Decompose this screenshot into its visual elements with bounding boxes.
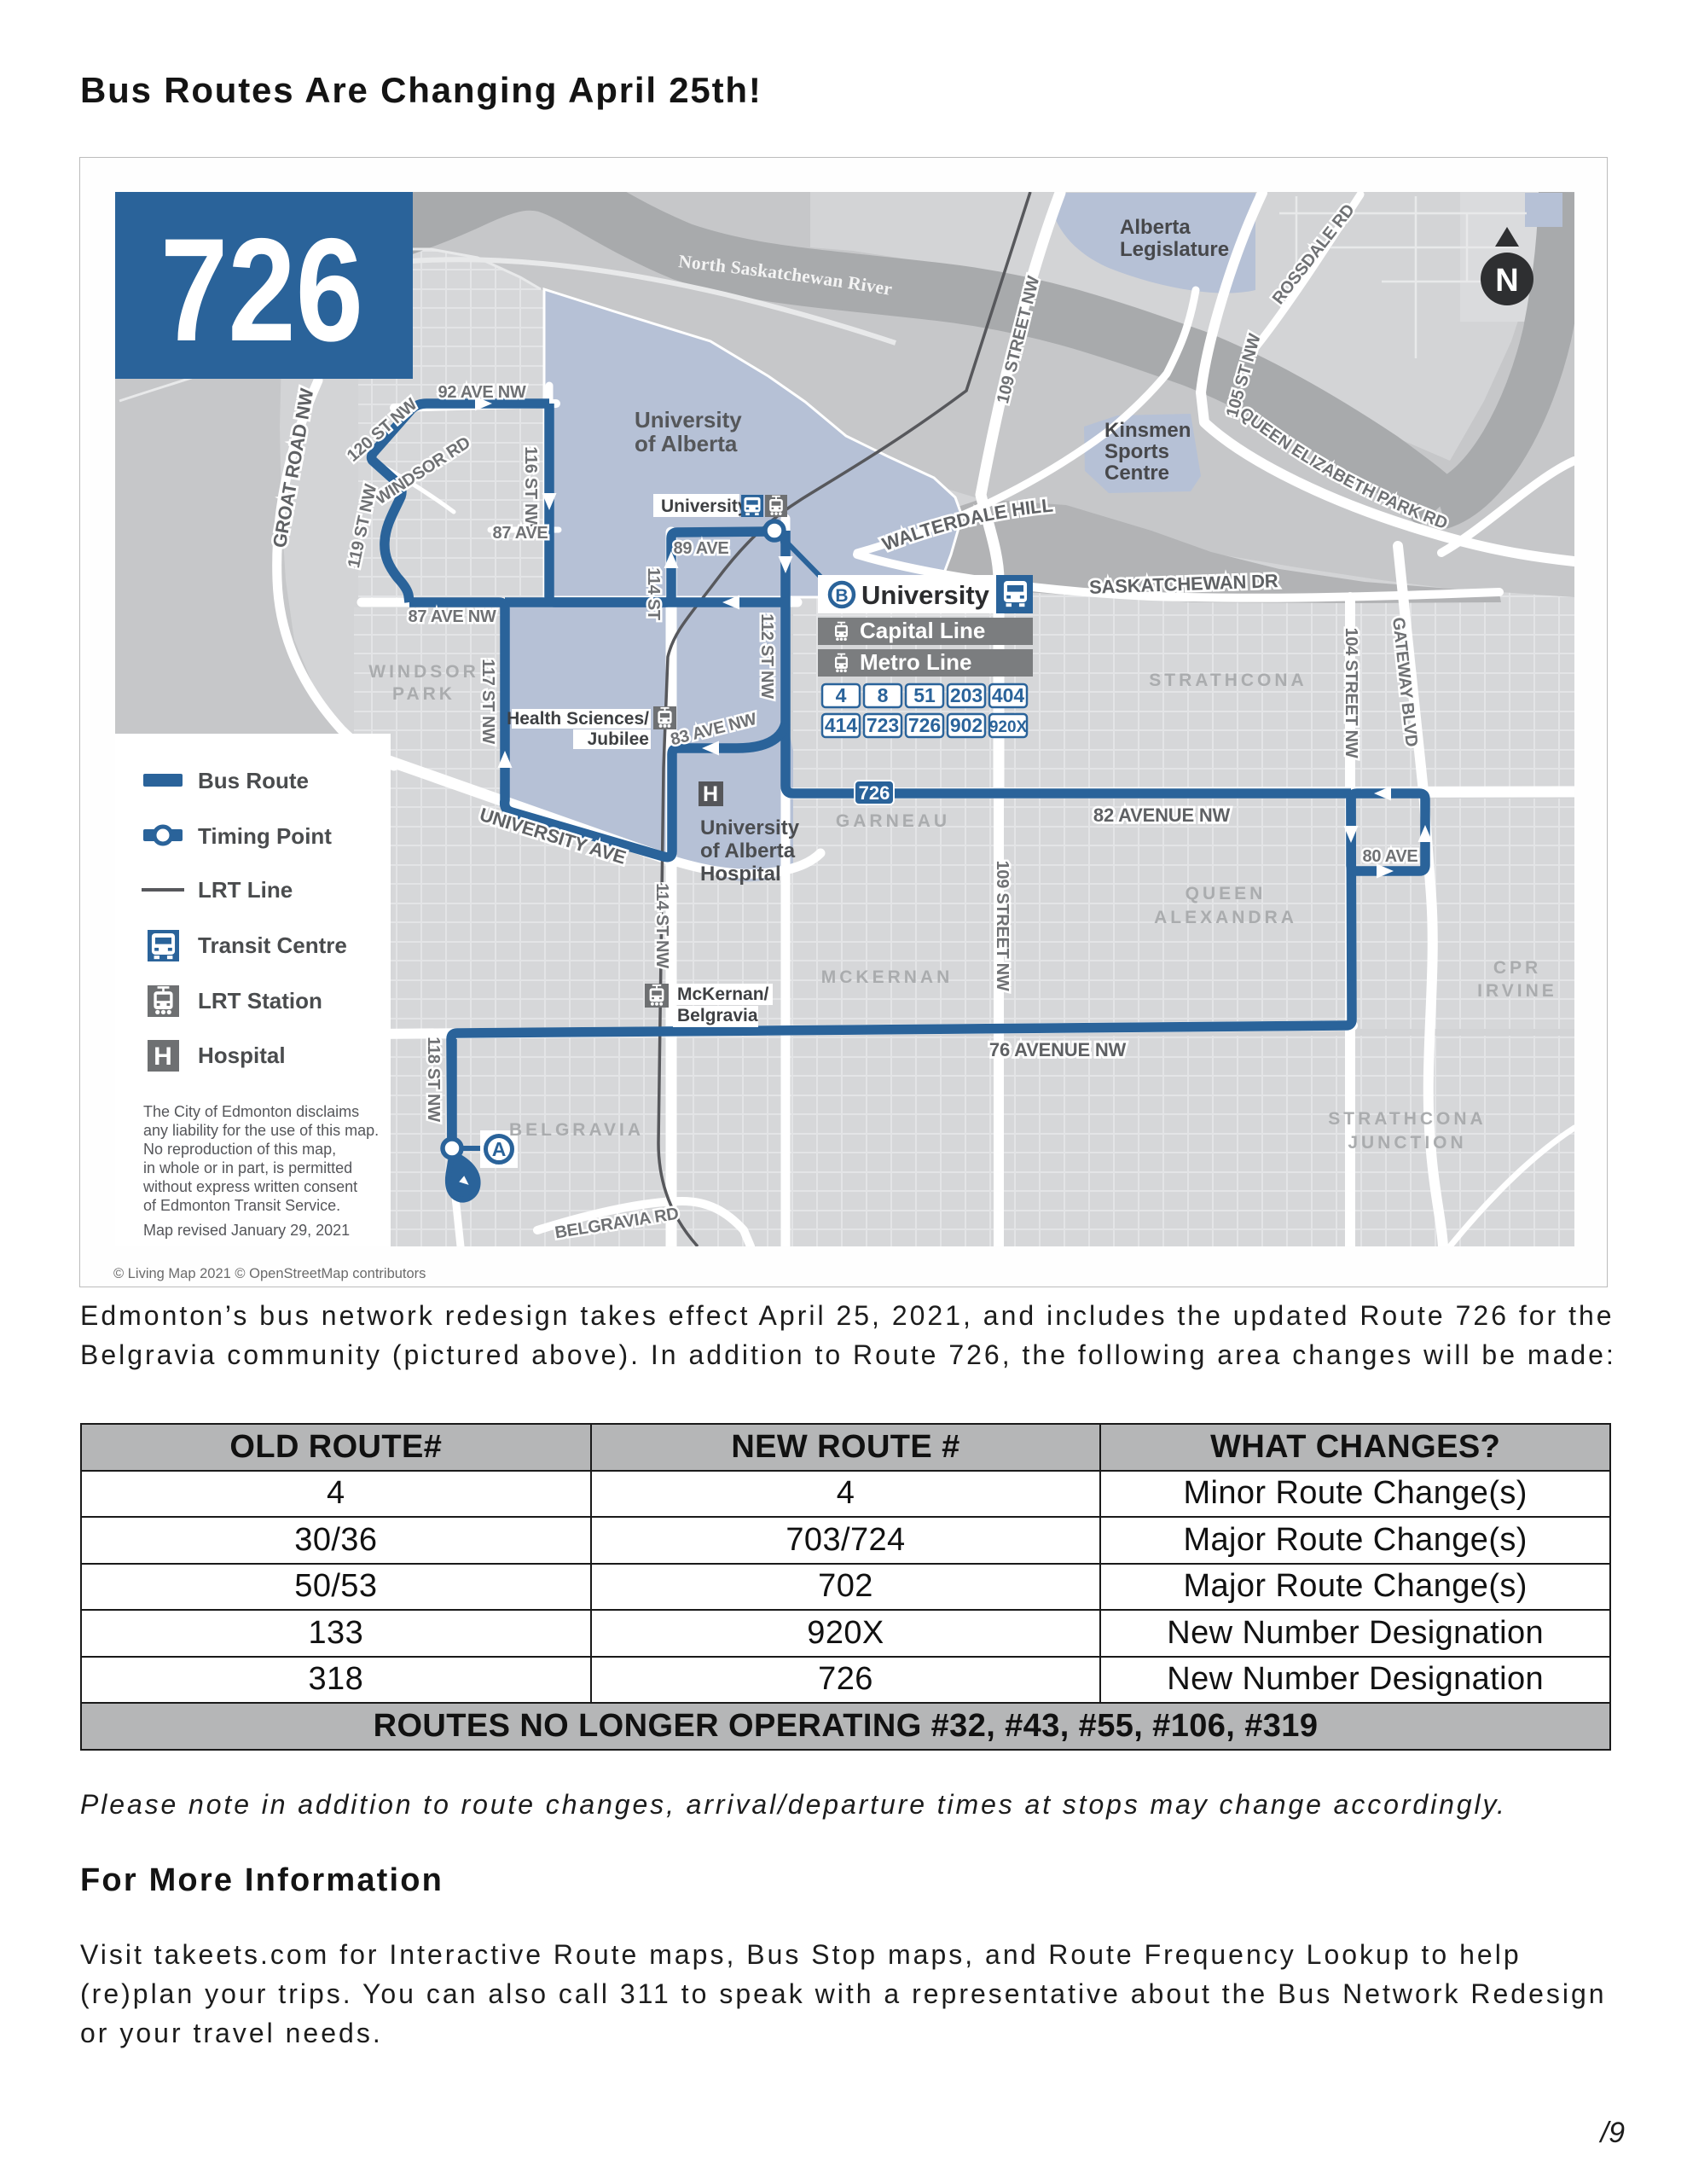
svg-text:Sports: Sports xyxy=(1104,440,1169,463)
svg-text:Map revised January 29, 2021: Map revised January 29, 2021 xyxy=(143,1222,350,1239)
svg-text:Timing Point: Timing Point xyxy=(198,823,332,849)
svg-text:University: University xyxy=(661,497,748,516)
svg-text:4: 4 xyxy=(836,684,847,706)
svg-text:University: University xyxy=(635,407,742,433)
svg-text:GARNEAU: GARNEAU xyxy=(836,811,950,831)
svg-text:Hospital: Hospital xyxy=(198,1043,286,1068)
svg-text:726: 726 xyxy=(859,782,890,804)
svg-text:51: 51 xyxy=(913,684,936,706)
svg-text:902: 902 xyxy=(950,714,983,736)
svg-text:Legislature: Legislature xyxy=(1120,238,1229,261)
svg-text:112 ST NW: 112 ST NW xyxy=(757,613,776,699)
svg-text:89 AVE: 89 AVE xyxy=(674,539,729,558)
svg-text:any liability for the use of t: any liability for the use of this map. xyxy=(143,1122,379,1139)
svg-text:of Alberta: of Alberta xyxy=(635,431,738,456)
svg-text:82 AVENUE NW: 82 AVENUE NW xyxy=(1093,804,1231,826)
svg-text:404: 404 xyxy=(992,684,1025,706)
svg-text:203: 203 xyxy=(950,684,983,706)
svg-text:McKernan/: McKernan/ xyxy=(677,985,769,1004)
svg-text:H: H xyxy=(154,1043,172,1071)
svg-text:H: H xyxy=(703,782,718,806)
svg-text:CPR: CPR xyxy=(1493,958,1541,978)
svg-text:109 STREET NW: 109 STREET NW xyxy=(993,861,1012,991)
svg-text:Centre: Centre xyxy=(1104,462,1169,485)
svg-text:80 AVE: 80 AVE xyxy=(1363,847,1418,866)
svg-text:No reproduction of this map,: No reproduction of this map, xyxy=(143,1141,336,1158)
svg-text:N: N xyxy=(1495,263,1518,299)
svg-text:726: 726 xyxy=(908,714,941,736)
svg-text:STRATHCONA: STRATHCONA xyxy=(1149,671,1307,690)
svg-text:118 ST NW: 118 ST NW xyxy=(424,1037,443,1122)
svg-text:University: University xyxy=(700,816,800,839)
svg-text:ALEXANDRA: ALEXANDRA xyxy=(1154,908,1297,927)
svg-text:The City of Edmonton disclaim: The City of Edmonton disclaims xyxy=(143,1103,359,1120)
svg-text:87 AVE: 87 AVE xyxy=(493,524,548,543)
svg-text:University: University xyxy=(861,580,990,610)
svg-text:Health Sciences/: Health Sciences/ xyxy=(507,709,649,729)
svg-text:Alberta: Alberta xyxy=(1120,216,1191,239)
svg-text:IRVINE: IRVINE xyxy=(1477,981,1557,1001)
svg-text:LRT Line: LRT Line xyxy=(198,877,293,903)
svg-text:Jubilee: Jubilee xyxy=(588,729,649,749)
svg-text:MCKERNAN: MCKERNAN xyxy=(821,967,954,987)
svg-text:Metro Line: Metro Line xyxy=(860,649,971,675)
svg-text:114 ST: 114 ST xyxy=(644,567,663,620)
svg-text:723: 723 xyxy=(867,714,899,736)
svg-text:117 ST NW: 117 ST NW xyxy=(478,659,497,744)
svg-text:920X: 920X xyxy=(989,718,1028,736)
svg-text:Transit Centre: Transit Centre xyxy=(198,932,347,958)
svg-text:STRATHCONA: STRATHCONA xyxy=(1328,1109,1486,1129)
svg-text:of Alberta: of Alberta xyxy=(700,839,796,863)
svg-text:726: 726 xyxy=(160,208,363,372)
svg-text:114 ST NW: 114 ST NW xyxy=(652,883,671,968)
svg-text:Hospital: Hospital xyxy=(700,863,781,886)
svg-text:JUNCTION: JUNCTION xyxy=(1348,1133,1466,1153)
svg-text:B: B xyxy=(835,586,848,606)
svg-text:92 AVE NW: 92 AVE NW xyxy=(438,383,526,402)
svg-text:PARK: PARK xyxy=(392,684,455,704)
svg-text:BELGRAVIA: BELGRAVIA xyxy=(509,1120,644,1140)
svg-text:Capital Line: Capital Line xyxy=(860,618,985,643)
svg-text:414: 414 xyxy=(825,714,858,736)
svg-text:87 AVE NW: 87 AVE NW xyxy=(409,607,496,626)
svg-text:without express written consen: without express written consent xyxy=(142,1178,357,1195)
svg-text:of Edmonton Transit Service.: of Edmonton Transit Service. xyxy=(143,1197,340,1214)
svg-text:116 ST NW: 116 ST NW xyxy=(521,446,540,531)
svg-text:76 AVENUE NW: 76 AVENUE NW xyxy=(989,1039,1127,1060)
svg-text:8: 8 xyxy=(878,684,889,706)
svg-text:Kinsmen: Kinsmen xyxy=(1104,419,1191,442)
svg-text:Belgravia: Belgravia xyxy=(677,1006,758,1025)
svg-text:in whole or in part, is permit: in whole or in part, is permitted xyxy=(143,1159,352,1176)
svg-text:QUEEN: QUEEN xyxy=(1186,884,1267,903)
svg-text:Bus Route: Bus Route xyxy=(198,768,309,793)
svg-text:104 STREET NW: 104 STREET NW xyxy=(1342,628,1360,758)
svg-text:WINDSOR: WINDSOR xyxy=(368,662,479,682)
svg-text:A: A xyxy=(492,1138,507,1160)
svg-text:LRT Station: LRT Station xyxy=(198,988,322,1014)
